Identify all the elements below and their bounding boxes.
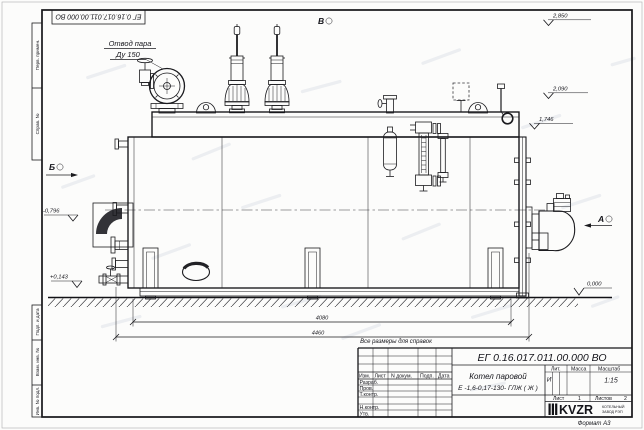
elevation-2090-value: 2,090 [552, 87, 568, 93]
sheets-value: 2 [624, 396, 627, 402]
hidden-fitting-dashed [453, 83, 469, 113]
margin-cell-inv-podl: Инв. № подл. [35, 387, 40, 416]
safety-valve-1 [225, 24, 249, 113]
blowdown-valve [99, 266, 128, 285]
dimension-4460: 4460 [113, 331, 532, 341]
row-tkontr: Т.контр. [360, 392, 379, 398]
water-level-gauge-2 [438, 134, 448, 183]
view-label-v: В [318, 16, 332, 26]
deck-valve [378, 96, 397, 114]
row-utv: Утв. [360, 412, 370, 418]
scale-value: 1:15 [604, 378, 618, 385]
product-name: Котел паровой [469, 372, 527, 381]
margin-cell-perv-primen: Перв. примен. [35, 40, 40, 71]
view-label-b: Б [46, 162, 78, 177]
reference-designation-box: ЕГ 0.16.017.011.00.000 ВО [52, 10, 145, 24]
elevation-2850-value: 2,850 [552, 14, 568, 20]
front-nozzles [111, 139, 128, 270]
row-nkontr: Н.контр. [360, 405, 380, 411]
elevation-0143-value: +0,143 [50, 275, 69, 281]
view-label-a: А [584, 214, 612, 228]
dimension-4080: 4080 [130, 316, 514, 326]
boiler-drawing-svg: ЕГ 0.16.017.011.00.000 ВО Перв. примен. … [0, 0, 644, 430]
burner [526, 194, 575, 251]
view-a-letter: А [597, 214, 604, 224]
col-izm: Изм. [359, 374, 370, 380]
sheet-value: 1 [578, 396, 581, 402]
elevation-2850: 2,850 [544, 14, 592, 26]
margin-cell-sprav-no: Справ. № [35, 114, 40, 135]
ground [48, 298, 612, 308]
logo-line2: ЗАВОД РЭП [602, 410, 623, 414]
manufacturer-logo: KVZR КОТЕЛЬНЫЙ ЗАВОД РЭП [549, 403, 625, 417]
steam-outlet-label: Отвод пара Ду 150 [104, 39, 163, 69]
drawing-sheet: ЕГ 0.16.017.011.00.000 ВО Перв. примен. … [0, 0, 644, 430]
col-podp: Подп. [420, 374, 434, 380]
titleblock-doc-number: ЕГ 0.16.017.011.00.000 ВО [477, 352, 606, 364]
elevation-2090: 2,090 [544, 87, 589, 99]
left-margin-cells: Перв. примен. Справ. № Подп. и дата Взам… [32, 23, 42, 417]
product-code: Е -1,6-0,17-130- ГЛЖ ( Ж ) [458, 385, 538, 392]
col-data: Дата [438, 374, 450, 380]
margin-cell-podp-data: Подп. и дата [35, 308, 40, 336]
sheets-label: Листов [595, 396, 612, 402]
sheet-label: Лист [553, 396, 565, 402]
dimension-4080-value: 4080 [316, 316, 329, 322]
format-label: Формат А3 [578, 421, 611, 427]
lit-value: И [547, 377, 552, 384]
title-block: ЕГ 0.16.017.011.00.000 ВО Котел паровой … [358, 348, 632, 418]
water-level-gauge-1 [410, 122, 441, 191]
reference-note: Все размеры для справок [360, 339, 433, 345]
scale-header: Масштаб [598, 367, 620, 373]
steam-outlet-label-line2: Ду 150 [115, 50, 141, 59]
steam-outlet-label-line1: Отвод пара [109, 39, 152, 48]
elevation-1746-value: 1,746 [539, 117, 554, 123]
sheet-frame: ЕГ 0.16.017.011.00.000 ВО Перв. примен. … [2, 2, 642, 428]
dimension-4460-value: 4460 [312, 331, 325, 337]
margin-cell-vzam-inv: Взам. инв. № [35, 348, 40, 377]
rear-flange-column [515, 137, 531, 298]
col-ndoc: N докум. [391, 374, 412, 380]
view-v-letter: В [318, 16, 324, 26]
logo-line1: КОТЕЛЬНЫЙ [602, 405, 625, 409]
elevation-plus-0143: +0,143 [50, 275, 82, 288]
lever-rod-and-hook [498, 84, 513, 124]
elevation-minus-0796: -0,796 [43, 209, 78, 222]
lit-header: Лит. [551, 367, 561, 373]
reference-designation: ЕГ 0.16.017.011.00.000 ВО [55, 12, 142, 19]
boiler-body [105, 112, 548, 296]
elevation-ground: 0,000 [574, 282, 612, 296]
watermark-smudges [61, 48, 636, 392]
elevation-0000-value: 0,000 [587, 282, 602, 288]
col-list: Лист [375, 374, 387, 380]
view-b-letter: Б [49, 162, 55, 172]
safety-valve-2 [265, 24, 289, 113]
steam-valve [138, 58, 154, 88]
manhole [183, 263, 210, 280]
elevation-0796-value: -0,796 [43, 209, 60, 215]
mass-header: Масса [571, 367, 586, 373]
steam-outlet-assembly [138, 58, 185, 113]
sample-cooler-vessel [384, 127, 397, 177]
logo-text: KVZR [559, 403, 593, 417]
